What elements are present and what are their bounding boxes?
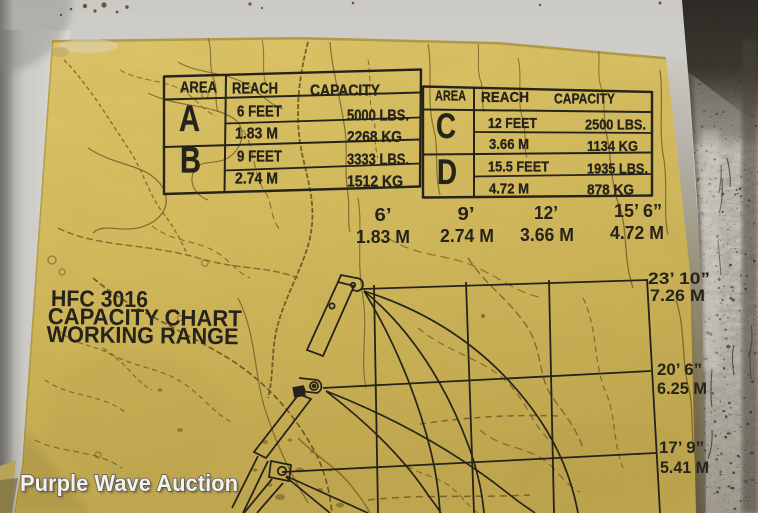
svg-text:REACH: REACH: [481, 89, 529, 106]
svg-text:AREA: AREA: [180, 80, 217, 97]
svg-text:20’ 6”: 20’ 6”: [657, 360, 702, 379]
svg-text:5000 LBS.: 5000 LBS.: [347, 108, 409, 125]
svg-text:A: A: [179, 98, 200, 139]
svg-text:17’ 9”: 17’ 9”: [659, 438, 704, 457]
svg-text:6.25 M: 6.25 M: [657, 379, 707, 398]
svg-text:REACH: REACH: [232, 81, 278, 98]
svg-text:1.83 M: 1.83 M: [235, 126, 278, 143]
svg-text:9’: 9’: [458, 204, 475, 224]
svg-text:D: D: [437, 153, 457, 192]
svg-text:12’: 12’: [534, 203, 558, 223]
svg-text:AREA: AREA: [435, 88, 466, 105]
svg-text:878 KG: 878 KG: [587, 182, 634, 199]
svg-text:Purple Wave Auction: Purple Wave Auction: [20, 470, 238, 496]
svg-text:6’: 6’: [375, 205, 392, 225]
svg-text:CAPACITY: CAPACITY: [554, 91, 615, 108]
svg-text:5.41 M: 5.41 M: [660, 458, 709, 477]
svg-text:6 FEET: 6 FEET: [237, 104, 282, 121]
svg-text:CAPACITY: CAPACITY: [310, 83, 380, 100]
svg-text:B: B: [180, 140, 201, 181]
svg-text:12 FEET: 12 FEET: [488, 115, 537, 132]
svg-text:2268 KG: 2268 KG: [347, 129, 402, 146]
svg-text:15’ 6”: 15’ 6”: [614, 201, 662, 221]
svg-text:2.74 M: 2.74 M: [235, 171, 278, 188]
svg-text:1512 KG: 1512 KG: [347, 174, 403, 191]
svg-text:1935 LBS.: 1935 LBS.: [587, 161, 648, 178]
svg-text:WORKING RANGE: WORKING RANGE: [46, 321, 238, 349]
svg-text:9 FEET: 9 FEET: [237, 149, 282, 166]
svg-text:1.83 M: 1.83 M: [356, 227, 410, 247]
svg-text:4.72 M: 4.72 M: [489, 181, 529, 198]
svg-text:2500 LBS.: 2500 LBS.: [585, 117, 646, 134]
svg-text:3.66 M: 3.66 M: [520, 225, 574, 245]
svg-text:1134 KG: 1134 KG: [587, 138, 638, 155]
svg-text:2.74 M: 2.74 M: [440, 226, 494, 246]
svg-text:3333 LBS.: 3333 LBS.: [347, 152, 409, 169]
svg-text:7.26 M: 7.26 M: [650, 286, 705, 305]
svg-text:4.72 M: 4.72 M: [610, 223, 664, 243]
svg-text:3.66 M: 3.66 M: [489, 136, 529, 153]
svg-text:C: C: [436, 107, 456, 146]
svg-text:15.5 FEET: 15.5 FEET: [488, 159, 549, 176]
